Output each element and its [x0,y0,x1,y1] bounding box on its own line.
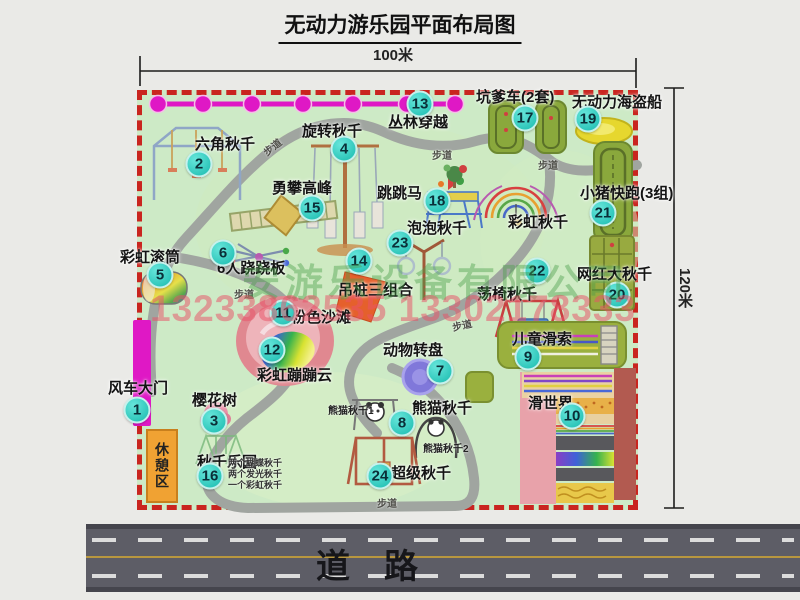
attraction-marker-18: 18 [424,188,451,215]
plan-canvas: 无动力游乐园平面布局图 100米 120米 [0,0,800,600]
attraction-label-1: 风车大门 [108,381,168,397]
attraction-label-5: 彩虹滚筒 [120,250,180,266]
rest-area: 休憩区 [146,429,178,503]
swing-note-line: 一个彩虹秋千 [228,480,282,491]
attraction-label-23: 泡泡秋千 [407,221,467,237]
attraction-marker-12: 12 [259,337,286,364]
rest-area-label: 休憩区 [152,442,172,490]
attraction-marker-7: 7 [427,358,454,385]
attraction-marker-6: 6 [210,240,237,267]
attraction-label-21: 小猪快跑(3组) [580,186,673,202]
height-dimension-label: 120米 [674,268,695,308]
attraction-marker-8: 8 [389,410,416,437]
attraction-label-12: 彩虹蹦蹦云 [257,368,332,384]
attraction-marker-16: 16 [197,463,224,490]
walkway-label-3: 步道 [538,157,558,172]
swing-note-line: 两个蝴蝶秋千 [228,458,282,469]
attraction-marker-1: 1 [124,397,151,424]
page-title: 无动力游乐园平面布局图 [279,9,522,44]
width-dimension-label: 100米 [358,44,428,65]
attraction-marker-13: 13 [407,91,434,118]
attraction-label-18: 跳跳马 [377,186,422,202]
attraction-marker-21: 21 [590,200,617,227]
road: 道路 [86,524,800,592]
slide-world-shape [520,368,636,504]
attraction-marker-9: 9 [515,344,542,371]
attraction-marker-24: 24 [367,463,394,490]
attraction-label-17: 坑爹车(2套) [476,90,554,106]
attraction-marker-10: 10 [559,403,586,430]
attraction-marker-5: 5 [147,262,174,289]
road-label: 道路 [86,539,800,588]
attraction-marker-19: 19 [575,106,602,133]
attraction-label-15: 勇攀高峰 [272,181,332,197]
attraction-marker-15: 15 [299,195,326,222]
attraction-label-8: 熊猫秋千 [412,401,472,417]
attraction-label-2: 六角秋千 [195,137,255,153]
attraction-marker-4: 4 [331,136,358,163]
attraction-label-3: 樱花树 [192,393,237,409]
small-label-2: 熊猫秋千2 [423,440,469,455]
attraction-label-4: 旋转秋千 [302,124,362,140]
attraction-label-7: 动物转盘 [383,343,443,359]
attraction-label-彩虹秋千: 彩虹秋千 [508,215,568,231]
attraction-marker-3: 3 [201,408,228,435]
attraction-marker-17: 17 [512,105,539,132]
swing-paradise-notes: 两个蝴蝶秋千两个发光秋千一个彩虹秋千 [228,458,282,491]
small-label-1: 熊猫秋千1 [328,402,374,417]
watermark-phone: 13233862535 13302178333 [150,288,636,330]
walkway-label-2: 步道 [432,147,452,162]
attraction-label-24: 超级秋千 [391,466,451,482]
swing-note-line: 两个发光秋千 [228,469,282,480]
walkway-label-6: 步道 [377,495,397,510]
attraction-marker-2: 2 [186,151,213,178]
